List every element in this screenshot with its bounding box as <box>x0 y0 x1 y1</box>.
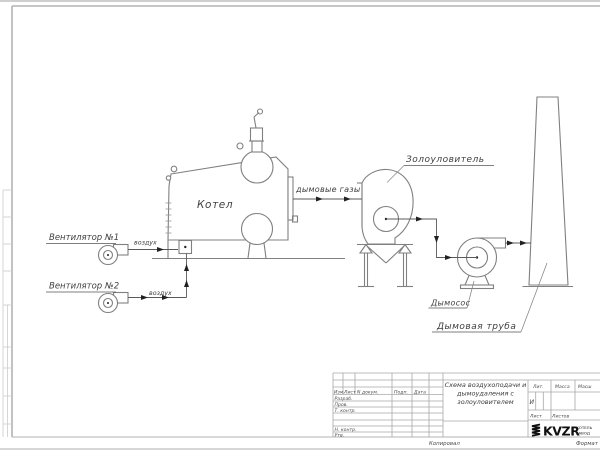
boiler-top-drum <box>241 151 273 183</box>
boiler-fitting <box>166 176 170 180</box>
sheet-label: Лист <box>529 414 542 420</box>
arrowhead-right <box>445 255 452 260</box>
boiler-label: Котел <box>197 199 233 211</box>
massa-label: Масса <box>555 384 570 390</box>
safety-valve-body <box>251 128 263 141</box>
fan2-label: Вентилятор №2 <box>49 282 119 292</box>
safety-valve-lever <box>254 117 256 128</box>
col-data: Дата <box>413 390 426 396</box>
drawing-frame <box>12 6 600 437</box>
flue-outlet-duct <box>288 177 293 220</box>
arrowhead-down <box>434 236 439 243</box>
lit-label: Лит. <box>532 384 544 390</box>
flue-gas-label: дымовые газы <box>295 185 361 194</box>
screen-top-edge <box>0 0 600 2</box>
drum-support <box>248 243 250 258</box>
schematic-drawing: Котел Вентилятор №1 Вентилятор №2 <box>0 0 600 450</box>
doc-title-line1: Схема воздухоподачи и <box>445 381 527 389</box>
exhauster-pedestal <box>485 276 489 286</box>
col-podp: Подп. <box>394 390 408 396</box>
spring-icon <box>532 425 540 436</box>
row-nkontr: Н. контр. <box>335 427 357 433</box>
lit-value: И <box>530 399 535 406</box>
arrowhead-up <box>184 280 189 287</box>
logo-sub-line1: КОТЕЛЬ <box>576 425 593 430</box>
boiler: Котел <box>152 109 345 259</box>
masshtab-label: Масш <box>578 384 592 390</box>
fan1-label: Вентилятор №1 <box>49 233 119 243</box>
arrowhead-right <box>416 217 423 222</box>
arrowhead-right <box>316 197 323 202</box>
fan1-center-dot <box>107 254 109 256</box>
logo-text: KVZR <box>543 424 580 439</box>
fan2-air-label: воздух <box>149 290 172 297</box>
exhauster-base <box>461 285 494 289</box>
boiler-bottom-drum <box>242 214 273 245</box>
row-utv: Утв. <box>335 433 345 439</box>
sheets-label: Листов <box>551 414 569 420</box>
arrowhead-right <box>520 241 527 246</box>
chimney-label: Дымовая труба <box>436 322 516 332</box>
air-inlet-center-dot <box>184 246 186 248</box>
drum-fitting <box>237 143 243 149</box>
row-razrab: Разраб. <box>335 396 353 402</box>
col-list: Лист <box>343 390 356 396</box>
fan-1: Вентилятор №1 <box>46 233 128 265</box>
fan-2: Вентилятор №2 <box>46 282 128 313</box>
cyclone-hopper <box>386 246 404 263</box>
chimney-body <box>529 97 568 285</box>
arrowhead-right <box>141 295 148 300</box>
safety-valve-stand <box>252 141 262 152</box>
chimney: Дымовая труба <box>432 97 573 332</box>
kvzr-logo: KVZR КОТЕЛЬ ЗАВОД <box>532 424 593 439</box>
boiler-fitting <box>171 166 177 172</box>
ash-collector-label: Золоуловитель <box>406 155 485 165</box>
row-prov: Пров. <box>335 402 348 408</box>
title-block: Изм. Лист N докум. Подп. Дата Разраб. Пр… <box>333 373 600 447</box>
fan2-center-dot <box>107 302 109 304</box>
format-label: Формат <box>576 441 599 447</box>
row-tkontr: Т. контр. <box>335 408 356 414</box>
kopiroval-label: Копировал <box>429 441 460 447</box>
logo-sub-line2: ЗАВОД <box>576 431 590 436</box>
safety-valve-knob <box>258 109 263 114</box>
col-ndokum: N докум. <box>357 390 378 396</box>
side-stamp <box>3 190 12 437</box>
exhauster-pedestal <box>465 276 469 286</box>
doc-title-line2: дымоудаления с <box>456 390 514 398</box>
drawing-sheet: Котел Вентилятор №1 Вентилятор №2 <box>0 0 600 450</box>
cyclone-hopper <box>367 246 386 263</box>
arrowhead-up <box>184 264 189 271</box>
smoke-exhauster: Дымосос <box>429 238 506 308</box>
fan1-air-label: воздух <box>134 240 157 247</box>
doc-title-line3: золоуловителем <box>457 398 514 406</box>
arrowhead-right <box>344 197 351 202</box>
arrowhead-right <box>507 241 514 246</box>
smoke-exhauster-label: Дымосос <box>430 299 471 308</box>
arrowhead-right <box>157 247 164 252</box>
drum-support <box>264 243 266 258</box>
